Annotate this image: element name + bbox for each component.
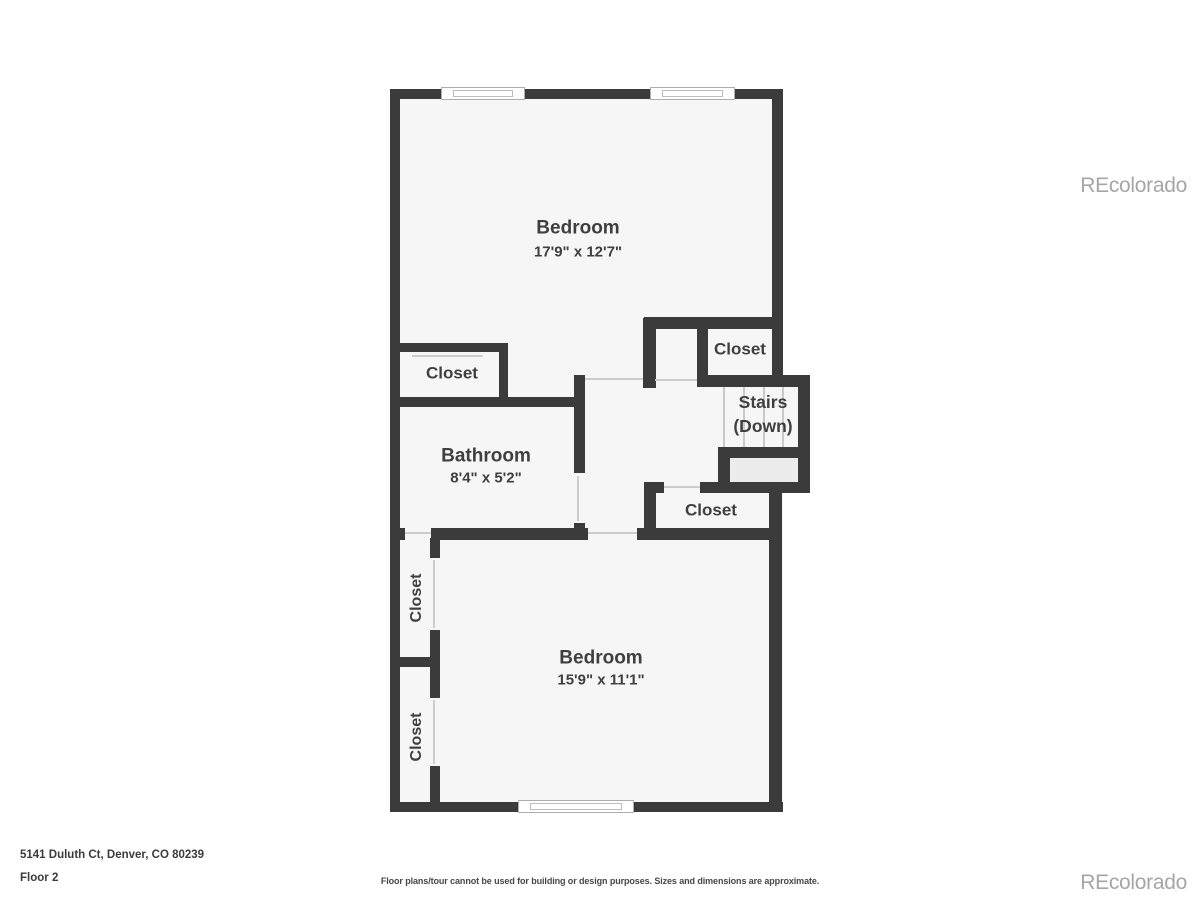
- wall-closet-b-stub-top: [430, 667, 440, 698]
- room-dims-bathroom: 8'4" x 5'2": [450, 471, 521, 486]
- wall-outer-left: [390, 89, 400, 812]
- window-pane: [662, 90, 723, 97]
- wall-separator-b: [431, 528, 588, 540]
- door-opening-closet-tl: [412, 355, 483, 357]
- wall-closet-b-stub-bottom: [430, 766, 440, 802]
- wall-closet-tl-top: [395, 343, 508, 352]
- wall-closet-tr-bottom: [697, 375, 810, 387]
- room-dims-bedroom-bottom: 15'9" x 11'1": [557, 673, 644, 688]
- wall-outer-right-upper: [772, 89, 783, 387]
- room-label-bedroom-bottom: Bedroom: [559, 649, 642, 668]
- room-label-closet-left-a: Closet: [409, 574, 425, 623]
- room-label-closet-mid: Closet: [685, 502, 737, 519]
- window-pane: [453, 90, 513, 97]
- stairs-label-line1: Stairs: [733, 390, 792, 414]
- room-label-bathroom: Bathroom: [441, 447, 531, 466]
- address-text: 5141 Duluth Ct, Denver, CO 80239: [20, 849, 204, 861]
- room-label-stairs: Stairs (Down): [733, 390, 792, 438]
- wall-closet-tl-right: [499, 343, 508, 400]
- wall-niche-closet-top: [644, 317, 783, 329]
- door-opening-closet-a: [433, 560, 435, 628]
- room-label-closet-top-right: Closet: [714, 341, 766, 358]
- room-label-bedroom-top: Bedroom: [536, 219, 619, 238]
- wall-bathroom-right-upper: [574, 375, 585, 473]
- wall-closet-a-stub-top: [430, 538, 440, 558]
- window-symbol-top-left: [441, 87, 525, 100]
- wall-stairs-right: [798, 375, 810, 492]
- stair-tread: [723, 387, 725, 447]
- disclaimer-text: Floor plans/tour cannot be used for buil…: [0, 876, 1200, 886]
- door-opening-bathroom: [577, 476, 579, 521]
- wall-outer-right-lower: [769, 493, 782, 812]
- floor-plan-page: Bedroom 17'9" x 12'7" Closet Closet Stai…: [0, 0, 1200, 900]
- room-dims-bedroom-top: 17'9" x 12'7": [534, 245, 622, 260]
- door-opening-niche: [655, 379, 697, 381]
- door-opening-linen-closet: [405, 532, 431, 534]
- window-symbol-top-right: [650, 87, 735, 100]
- recolorado-watermark-top: REcolorado: [1080, 174, 1187, 198]
- door-opening-closet-b: [433, 700, 435, 764]
- wall-stairs-bottom: [718, 447, 810, 458]
- wall-separator-c: [637, 528, 780, 540]
- window-symbol-bottom: [518, 800, 634, 813]
- room-label-closet-left-b: Closet: [409, 713, 425, 762]
- door-opening-closet-mid: [664, 486, 700, 488]
- wall-niche-right: [697, 317, 708, 383]
- wall-landing-band-right: [700, 482, 810, 493]
- window-pane: [530, 803, 622, 810]
- door-opening-hall-top: [585, 378, 644, 380]
- wall-separator-a: [390, 528, 405, 540]
- room-label-closet-top-left: Closet: [426, 365, 478, 382]
- door-opening-bedroom-bottom: [588, 532, 637, 534]
- stair-landing-fill: [730, 458, 798, 482]
- stairs-label-line2: (Down): [733, 414, 792, 438]
- wall-closet-divider: [390, 657, 440, 667]
- wall-bathroom-top: [390, 397, 585, 407]
